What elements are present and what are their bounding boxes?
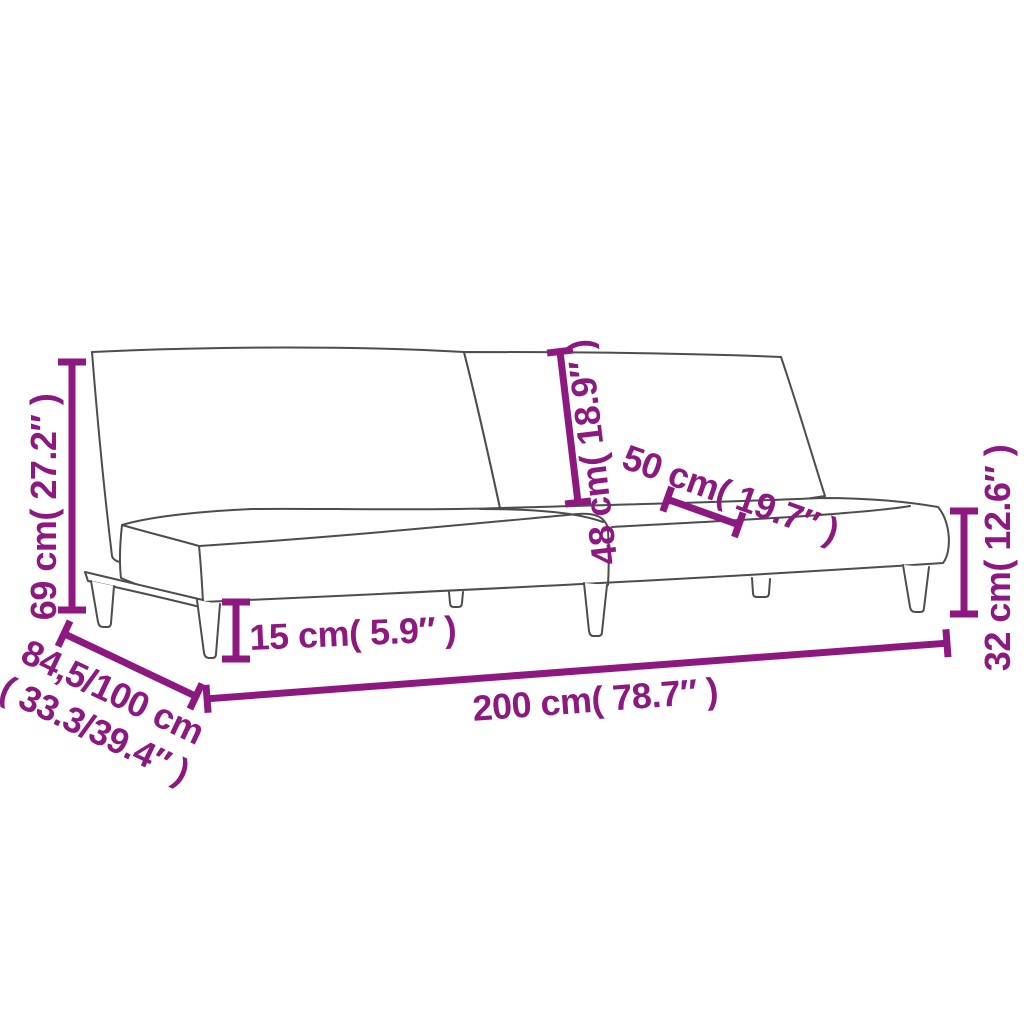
dim-overall-length-tick-right (946, 629, 948, 657)
front-leg-left (197, 600, 220, 658)
dim-leg-height: 15 cm( 5.9″ ) (222, 602, 457, 659)
back-leg-left (449, 592, 463, 607)
dim-depth-range: 84,5/100 cm ( 33.3/39.4″ ) (0, 607, 225, 792)
dim-platform-height-label: 32 cm( 12.6″ ) (977, 445, 1018, 671)
dim-overall-height-label: 69 cm( 27.2″ ) (23, 394, 64, 620)
dim-overall-length-tick-left (206, 685, 208, 713)
dimension-diagram: 69 cm( 27.2″ ) 48 cm( 18.9″ ) 50 cm( 19.… (0, 0, 1024, 1024)
back-leg-right (752, 578, 770, 597)
front-leg-far-left (91, 581, 114, 627)
dim-leg-height-label: 15 cm( 5.9″ ) (249, 608, 457, 658)
front-leg-middle (584, 583, 607, 636)
dim-overall-height: 69 cm( 27.2″ ) (23, 362, 86, 620)
front-leg-right (903, 565, 929, 612)
dim-platform-height: 32 cm( 12.6″ ) (950, 445, 1018, 671)
sofa-diagram-canvas: 69 cm( 27.2″ ) 48 cm( 18.9″ ) 50 cm( 19.… (0, 0, 1024, 1024)
